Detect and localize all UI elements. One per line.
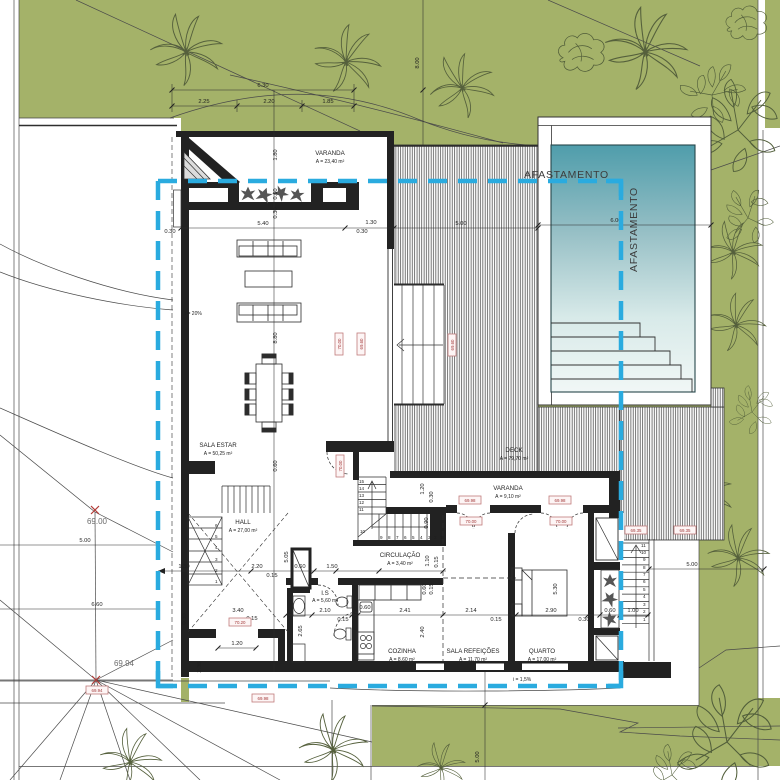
svg-text:A = 27,00 m²: A = 27,00 m² xyxy=(229,528,258,534)
svg-text:1.50: 1.50 xyxy=(326,564,337,570)
svg-text:5: 5 xyxy=(643,587,646,592)
svg-text:A = 17,00 m²: A = 17,00 m² xyxy=(528,657,557,663)
svg-text:0.15: 0.15 xyxy=(434,556,440,567)
svg-text:0.15: 0.15 xyxy=(429,583,435,594)
svg-text:69.94: 69.94 xyxy=(114,659,135,668)
svg-text:6: 6 xyxy=(404,535,407,540)
svg-text:70.20: 70.20 xyxy=(235,620,247,625)
svg-text:3.40: 3.40 xyxy=(232,608,243,614)
svg-text:69.60: 69.60 xyxy=(359,338,364,350)
svg-text:2.20: 2.20 xyxy=(263,99,274,105)
svg-text:CIRCULAÇÃO: CIRCULAÇÃO xyxy=(380,552,421,559)
svg-text:A = 50,25 m²: A = 50,25 m² xyxy=(204,451,233,457)
svg-text:69.35: 69.35 xyxy=(680,528,692,533)
svg-text:7: 7 xyxy=(396,535,399,540)
svg-text:1.10: 1.10 xyxy=(425,555,431,566)
svg-text:0.90: 0.90 xyxy=(424,517,430,528)
svg-text:0.30: 0.30 xyxy=(356,229,367,235)
svg-text:0.60: 0.60 xyxy=(604,608,615,614)
svg-text:0.60: 0.60 xyxy=(273,460,279,471)
svg-text:2.10: 2.10 xyxy=(319,608,330,614)
svg-text:10: 10 xyxy=(641,550,647,555)
svg-text:0.30: 0.30 xyxy=(273,207,279,218)
svg-text:SALA REFEIÇÕES: SALA REFEIÇÕES xyxy=(447,648,500,655)
svg-text:69.35: 69.35 xyxy=(631,528,643,533)
svg-text:0.60: 0.60 xyxy=(273,188,279,199)
svg-text:HALL: HALL xyxy=(235,519,251,526)
svg-text:A = 8,60 m²: A = 8,60 m² xyxy=(389,657,415,663)
svg-text:3: 3 xyxy=(428,535,431,540)
svg-text:3: 3 xyxy=(643,602,646,607)
svg-text:2.90: 2.90 xyxy=(545,608,556,614)
svg-text:VARANDA: VARANDA xyxy=(315,150,345,157)
svg-text:5.00: 5.00 xyxy=(475,751,481,762)
svg-text:4: 4 xyxy=(420,535,423,540)
svg-text:2.41: 2.41 xyxy=(399,608,410,614)
svg-text:6.30: 6.30 xyxy=(257,83,268,89)
svg-text:8: 8 xyxy=(643,565,646,570)
svg-text:70.00: 70.00 xyxy=(556,519,568,524)
svg-text:11: 11 xyxy=(641,543,646,548)
svg-text:i = 20%: i = 20% xyxy=(185,311,202,317)
svg-text:5.05: 5.05 xyxy=(284,551,290,562)
svg-text:5: 5 xyxy=(412,535,415,540)
svg-text:A = 79,70 m²: A = 79,70 m² xyxy=(500,456,529,462)
svg-text:0.15: 0.15 xyxy=(337,617,348,623)
svg-text:5: 5 xyxy=(215,534,218,539)
svg-text:1: 1 xyxy=(643,617,646,622)
svg-text:3: 3 xyxy=(215,557,218,562)
svg-text:2: 2 xyxy=(215,568,218,573)
svg-text:10: 10 xyxy=(360,529,366,534)
svg-text:8.00: 8.00 xyxy=(415,57,421,68)
svg-text:69.00: 69.00 xyxy=(87,517,108,526)
svg-text:2.65: 2.65 xyxy=(298,625,304,636)
svg-text:12: 12 xyxy=(359,500,365,505)
svg-text:COZINHA: COZINHA xyxy=(388,648,417,655)
svg-text:14: 14 xyxy=(359,486,365,491)
svg-text:AFASTAMENTO: AFASTAMENTO xyxy=(628,187,640,272)
svg-text:1.00: 1.00 xyxy=(627,608,638,614)
svg-text:69.98: 69.98 xyxy=(555,498,567,503)
svg-text:2: 2 xyxy=(643,609,646,614)
svg-text:A = 5,60 m²: A = 5,60 m² xyxy=(312,598,338,604)
svg-text:1.80: 1.80 xyxy=(273,149,279,160)
svg-text:A = 9,10 m²: A = 9,10 m² xyxy=(495,494,521,500)
svg-text:5.00: 5.00 xyxy=(686,562,697,568)
svg-text:69.98: 69.98 xyxy=(465,498,477,503)
svg-text:i = 1,5%: i = 1,5% xyxy=(513,677,532,683)
svg-text:7: 7 xyxy=(643,572,646,577)
svg-text:5.40: 5.40 xyxy=(257,221,268,227)
svg-text:1.20: 1.20 xyxy=(420,483,426,494)
svg-text:1.20: 1.20 xyxy=(231,641,242,647)
svg-text:6: 6 xyxy=(643,579,646,584)
svg-text:2.25: 2.25 xyxy=(198,99,209,105)
svg-text:2.14: 2.14 xyxy=(465,608,477,614)
svg-text:11: 11 xyxy=(359,507,364,512)
svg-text:0.30: 0.30 xyxy=(182,613,188,624)
svg-text:5.30: 5.30 xyxy=(553,583,559,594)
svg-text:0.60: 0.60 xyxy=(294,564,305,570)
svg-text:0.15: 0.15 xyxy=(266,573,277,579)
svg-text:2.35: 2.35 xyxy=(197,661,203,672)
svg-text:A = 11,70 m²: A = 11,70 m² xyxy=(459,657,487,663)
svg-text:6.60: 6.60 xyxy=(91,602,102,608)
svg-text:13: 13 xyxy=(359,493,365,498)
svg-text:1: 1 xyxy=(215,579,218,584)
svg-text:0.15: 0.15 xyxy=(490,617,501,623)
svg-text:6: 6 xyxy=(215,523,218,528)
svg-text:1: 1 xyxy=(440,535,443,540)
svg-text:2.20: 2.20 xyxy=(251,564,262,570)
svg-text:2: 2 xyxy=(434,535,437,540)
svg-text:15: 15 xyxy=(359,479,365,484)
svg-text:9: 9 xyxy=(643,557,646,562)
svg-text:0.30: 0.30 xyxy=(578,617,589,623)
svg-text:8.80: 8.80 xyxy=(273,332,279,343)
svg-text:QUARTO: QUARTO xyxy=(529,648,555,655)
svg-text:4: 4 xyxy=(215,545,218,550)
svg-text:5.00: 5.00 xyxy=(455,221,466,227)
svg-text:1.30: 1.30 xyxy=(365,220,376,226)
svg-text:A = 3,40 m²: A = 3,40 m² xyxy=(387,561,413,567)
svg-text:1.30: 1.30 xyxy=(178,564,189,570)
svg-text:DECK: DECK xyxy=(505,447,523,454)
svg-text:5.00: 5.00 xyxy=(79,538,90,544)
svg-text:2.40: 2.40 xyxy=(420,626,426,637)
svg-text:SALA ESTAR: SALA ESTAR xyxy=(199,442,237,449)
svg-text:0.30: 0.30 xyxy=(164,229,175,235)
svg-text:0.60: 0.60 xyxy=(422,583,428,594)
svg-text:VARANDA: VARANDA xyxy=(493,485,523,492)
svg-text:70.00: 70.00 xyxy=(338,460,343,472)
svg-text:69.98: 69.98 xyxy=(258,696,270,701)
svg-text:8: 8 xyxy=(388,535,391,540)
svg-text:0.60: 0.60 xyxy=(359,605,370,611)
svg-text:69.60: 69.60 xyxy=(450,339,455,351)
svg-text:9: 9 xyxy=(380,535,383,540)
svg-text:70.00: 70.00 xyxy=(466,519,478,524)
svg-text:69.94: 69.94 xyxy=(92,688,104,693)
svg-text:70.00: 70.00 xyxy=(337,338,342,350)
svg-text:0.30: 0.30 xyxy=(429,491,435,502)
svg-text:A = 23,40 m²: A = 23,40 m² xyxy=(316,159,345,165)
svg-text:I.S: I.S xyxy=(321,590,329,597)
svg-text:4: 4 xyxy=(643,594,646,599)
svg-text:1.85: 1.85 xyxy=(322,99,333,105)
